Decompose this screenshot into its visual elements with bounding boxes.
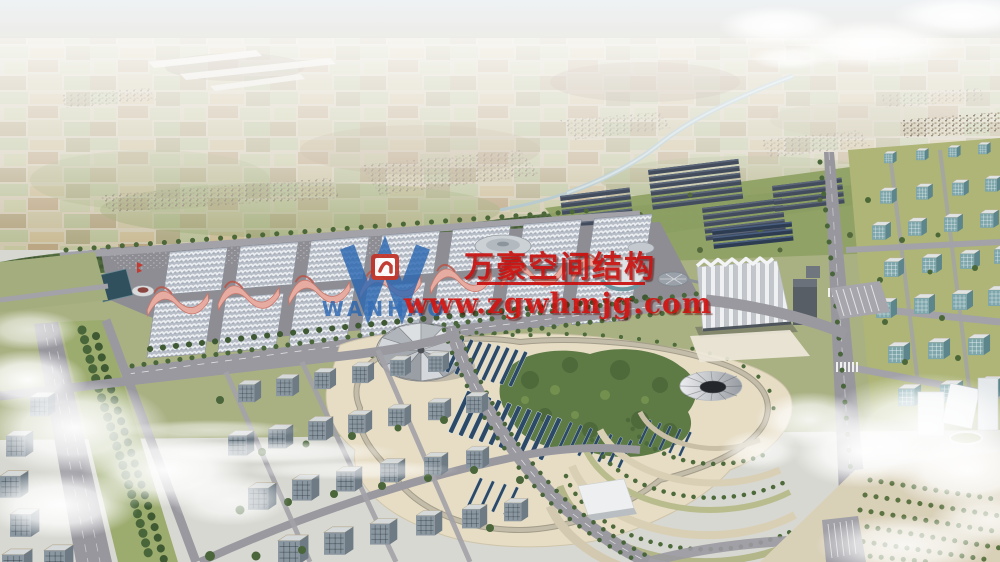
watermark-underline [477, 282, 645, 285]
funnel-pavilion [680, 372, 742, 401]
aerial-rendering-page: WANHAO 万豪空间结构 www.zgwhmjg.com [0, 0, 1000, 562]
wanhao-emblem-icon [371, 254, 399, 280]
round-pavilion [132, 286, 154, 297]
watermark-company-text: 万豪空间结构 [464, 250, 656, 285]
watermark-website-text: www.zgwhmjg.com [403, 287, 713, 320]
scene-svg: WANHAO 万豪空间结构 www.zgwhmjg.com [0, 0, 1000, 562]
watermark: WANHAO 万豪空间结构 www.zgwhmjg.com [322, 247, 713, 321]
